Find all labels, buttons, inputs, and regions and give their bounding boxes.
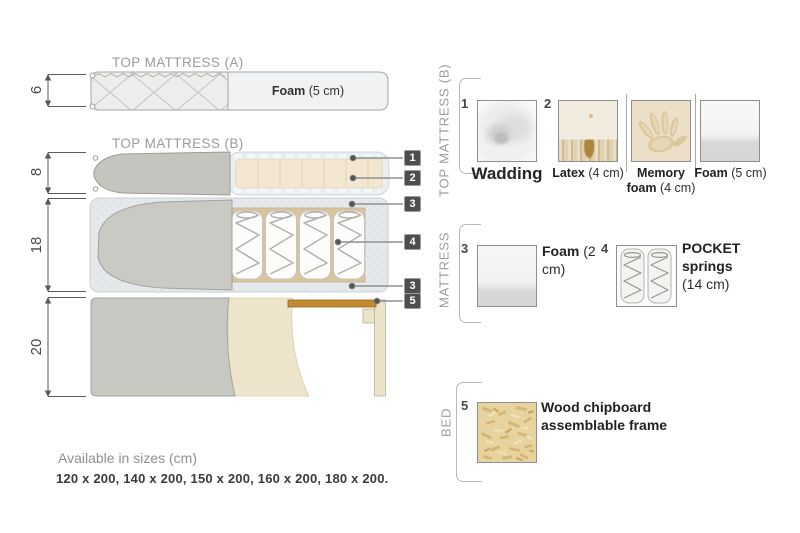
legend-caption-foam5: Foam (5 cm) (688, 166, 773, 181)
legend-section-bed-label: BED (438, 396, 454, 448)
available-sizes: 120 x 200, 140 x 200, 150 x 200, 160 x 2… (56, 471, 388, 486)
foam-photo (477, 245, 537, 307)
badge-4: 4 (404, 234, 421, 250)
legend-item-number: 1 (461, 96, 468, 111)
badge-1: 1 (404, 150, 421, 166)
availability-title: Available in sizes (cm) (58, 450, 197, 466)
legend-divider (695, 94, 696, 172)
dimension-8: 8 (28, 161, 46, 183)
badge-2: 2 (404, 170, 421, 186)
top-mattress-b-title: TOP MATTRESS (B) (112, 136, 244, 151)
legend-caption-latex: Latex (4 cm) (543, 166, 633, 181)
chipboard-photo (477, 402, 537, 463)
foam-layer-name: Foam (272, 84, 305, 98)
foam-layer-label: Foam (5 cm) (238, 84, 378, 98)
mattress-construction-diagram: TOP MATTRESS (A) TOP MATTRESS (B) 6 8 18… (0, 0, 800, 533)
wadding-photo (477, 100, 537, 162)
dimension-6: 6 (28, 79, 46, 101)
memory-foam-hand-imprint (632, 101, 690, 161)
legend-caption-name: Foam (542, 243, 579, 259)
legend-section-top-mattress-b-label: TOP MATTRESS (B) (436, 66, 452, 194)
badge-3-top: 3 (404, 196, 421, 212)
legend-caption-name: Latex (552, 166, 585, 180)
legend-item-number: 4 (601, 241, 608, 256)
legend-item-number: 2 (544, 96, 551, 111)
pocket-springs-photo (616, 245, 677, 307)
dimension-arrows (45, 74, 86, 397)
pocket-springs-drawing (617, 246, 676, 306)
legend-caption-detail: (4 cm) (660, 181, 695, 195)
bed-wooden-slat (288, 300, 376, 307)
top-mattress-a-title: TOP MATTRESS (A) (112, 55, 244, 70)
legend-caption-name: Wood chipboard assemblable frame (541, 399, 667, 433)
bed-shape (91, 298, 386, 396)
chipboard-texture (478, 403, 536, 462)
memory-foam-photo (631, 100, 691, 162)
legend-caption-detail: (14 cm) (682, 276, 729, 292)
badge-3-bottom: 3 (404, 278, 421, 294)
legend-item-number: 3 (461, 241, 468, 256)
legend-caption-detail: (5 cm) (731, 166, 766, 180)
latex-photo (558, 100, 618, 162)
legend-section-mattress-label: MATTRESS (436, 216, 452, 324)
dimension-18: 18 (28, 228, 46, 262)
badge-5: 5 (404, 293, 421, 309)
dimension-20: 20 (28, 330, 46, 364)
legend-divider (626, 94, 627, 172)
mattress-shape (90, 198, 388, 292)
legend-caption-detail: (4 cm) (588, 166, 623, 180)
bed-corner-bracket (363, 309, 375, 323)
legend-caption-foam2: Foam (2 cm) (542, 242, 600, 278)
legend-caption-name: POCKET springs (682, 240, 740, 274)
legend-item-number: 5 (461, 398, 468, 413)
legend-caption-pocket-springs: POCKET springs (14 cm) (682, 239, 754, 293)
legend-caption-name: Foam (694, 166, 727, 180)
foam-layer-size: (5 cm) (309, 84, 344, 98)
legend-caption-chipboard: Wood chipboard assemblable frame (541, 398, 691, 434)
top-mattress-b-shape (93, 152, 389, 195)
bed-side-rail (375, 300, 386, 396)
foam-photo (700, 100, 760, 162)
